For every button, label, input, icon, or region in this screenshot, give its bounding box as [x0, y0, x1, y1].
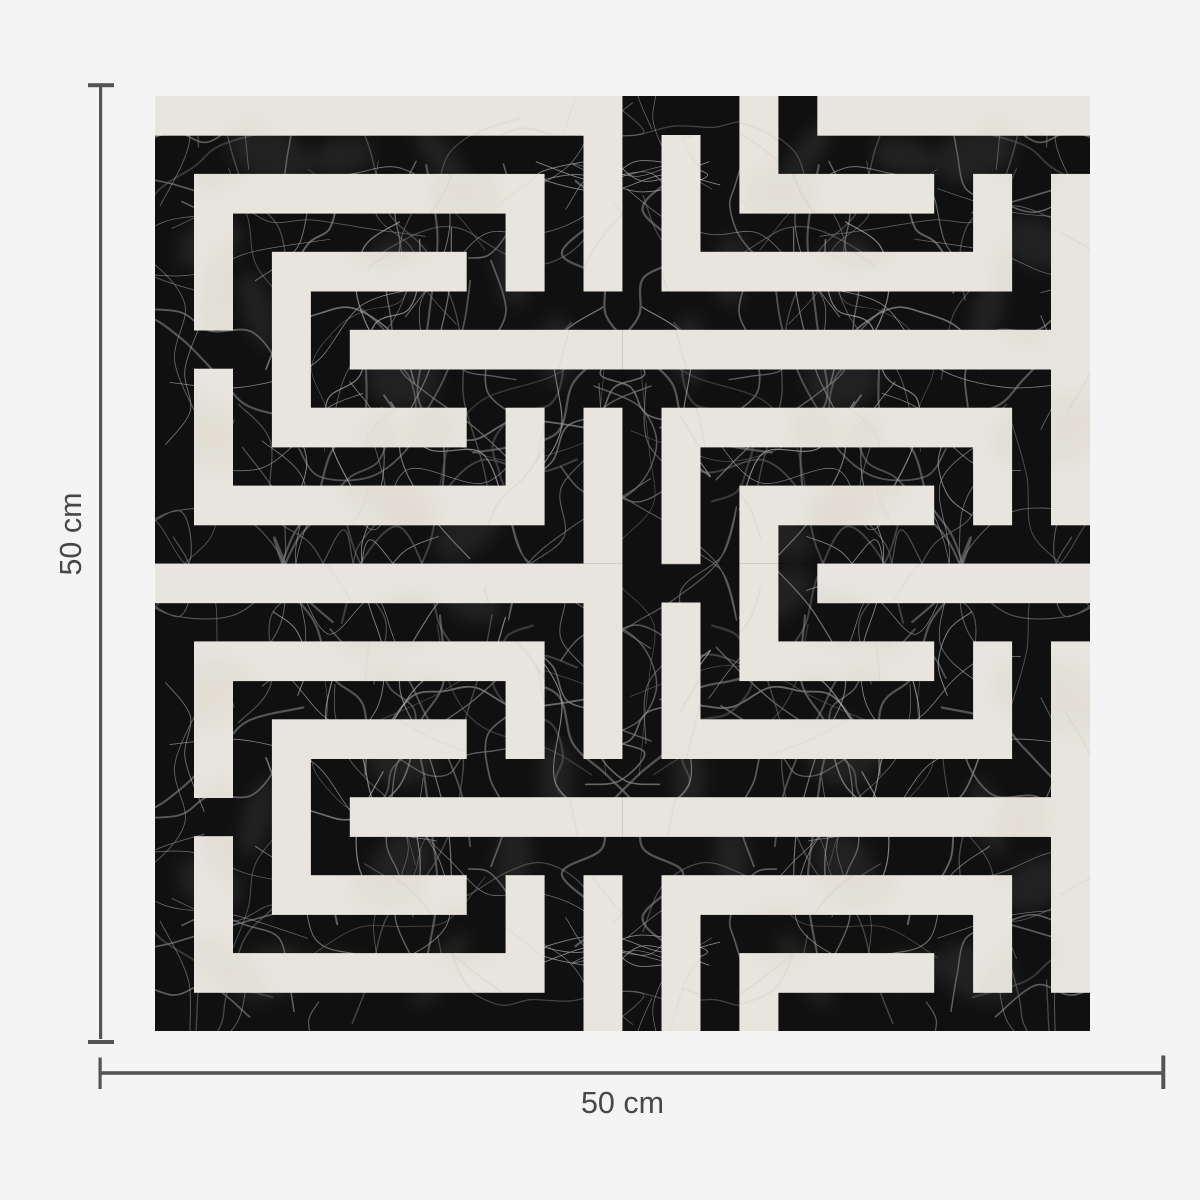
svg-text:50 cm: 50 cm: [581, 1086, 664, 1120]
svg-text:50 cm: 50 cm: [54, 492, 88, 575]
